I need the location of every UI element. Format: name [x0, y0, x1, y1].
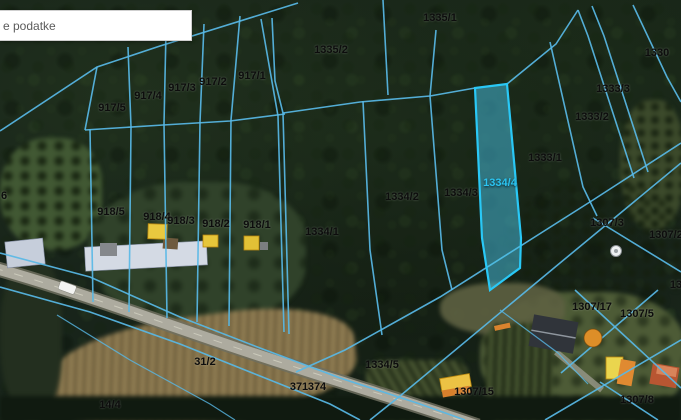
orange-structure [494, 323, 511, 331]
road [0, 268, 602, 420]
orange-point-marker [584, 329, 602, 347]
white-point-marker-core [614, 249, 618, 253]
highlighted-building-1307-15 [440, 374, 473, 398]
dark-roof-house [529, 314, 579, 353]
marker-layer [584, 246, 622, 348]
gray-building [100, 243, 117, 256]
highlighted-building-918-1 [244, 236, 259, 250]
map-tooltip: e podatke [0, 10, 192, 41]
map-tooltip-text: e podatke [3, 19, 56, 33]
cadastral-map[interactable]: 1335/11335/21330917/1917/2917/3917/4917/… [0, 0, 681, 420]
red-roof-house [649, 363, 679, 388]
gray-shed [260, 242, 268, 250]
parcel-boundaries [0, 0, 681, 420]
highlighted-building-918-4 [148, 224, 168, 240]
highlighted-building-918-2 [203, 235, 218, 247]
selected-parcel-1334-4[interactable] [475, 84, 521, 290]
